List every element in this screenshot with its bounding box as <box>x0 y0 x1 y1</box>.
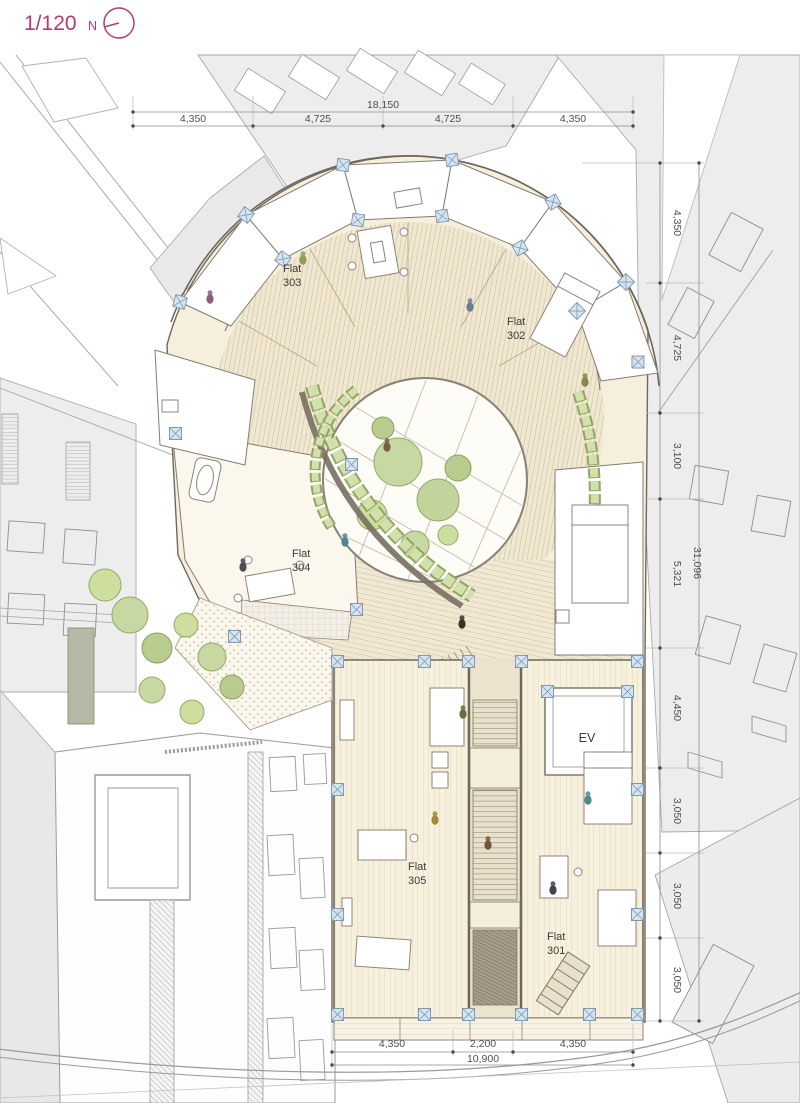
stair-corridor <box>468 658 522 1018</box>
elevator-label: EV <box>579 731 596 745</box>
dim-right-total: 31,096 <box>691 547 703 579</box>
north-compass-icon <box>104 8 134 38</box>
flat-305-number: 305 <box>408 875 426 887</box>
dim-right-seg-4: 4,450 <box>671 695 683 721</box>
dim-bottom-seg-2: 4,350 <box>560 1038 586 1050</box>
flat-305-label: Flat <box>408 861 426 873</box>
dim-top-seg-1: 4,725 <box>305 113 331 125</box>
dim-right-seg-0: 4,350 <box>671 210 683 236</box>
dim-right-seg-3: 5,321 <box>671 561 683 587</box>
flat-302-label: Flat <box>507 316 525 328</box>
dim-bottom-seg-1: 2,200 <box>470 1038 496 1050</box>
axonometric-floor-plan: EV <box>0 0 800 1103</box>
building-bottom-left <box>55 733 335 1103</box>
dim-right-seg-7: 3,050 <box>671 967 683 993</box>
dim-right-seg-6: 3,050 <box>671 883 683 909</box>
building-bottom-right <box>655 798 800 1103</box>
dim-right-seg-2: 3,100 <box>671 443 683 469</box>
dim-right-seg-1: 4,725 <box>671 335 683 361</box>
flat-304-number: 304 <box>292 562 310 574</box>
dimension-top: 18,150 4,350 4,725 4,725 4,350 <box>131 96 634 130</box>
dim-top-seg-3: 4,350 <box>560 113 586 125</box>
flat-303-number: 303 <box>283 277 301 289</box>
north-label: N <box>88 19 97 33</box>
balcony-strip <box>334 1018 643 1040</box>
dim-top-seg-2: 4,725 <box>435 113 461 125</box>
scale-north-indicator: 1/120 N <box>24 8 134 38</box>
flat-304-label: Flat <box>292 548 310 560</box>
dim-right-seg-5: 3,050 <box>671 798 683 824</box>
flat-302-number: 302 <box>507 330 525 342</box>
flat-301-label: Flat <box>547 931 565 943</box>
dim-top-total: 18,150 <box>367 99 399 111</box>
flat-303-label: Flat <box>283 263 301 275</box>
dim-bottom-total: 10,900 <box>467 1053 499 1065</box>
dim-top-seg-0: 4,350 <box>180 113 206 125</box>
architectural-drawing-page: EV <box>0 0 800 1103</box>
scale-label: 1/120 <box>24 12 77 35</box>
dim-bottom-seg-0: 4,350 <box>379 1038 405 1050</box>
flat-301-number: 301 <box>547 945 565 957</box>
